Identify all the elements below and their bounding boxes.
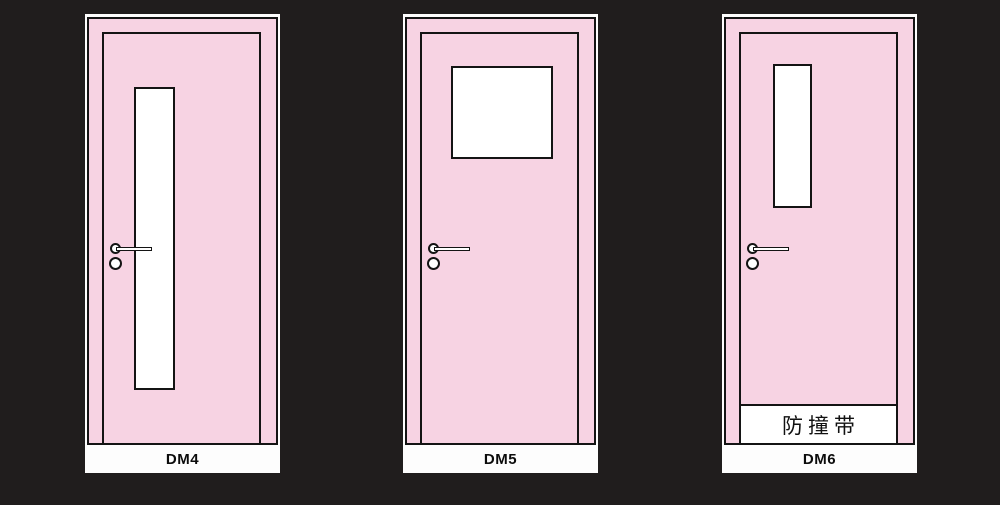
handle-knob [109,257,122,270]
door-label: DM5 [403,445,598,473]
door-label: DM4 [85,445,280,473]
door-unit-dm4: DM4 [85,14,280,473]
bumper-strip-label: 防撞带 [777,410,860,440]
door-unit-dm6: 防撞带 DM6 [722,14,917,473]
canvas: { "page": { "background_color": "#201d1d… [0,0,1000,505]
door-panel [87,17,278,445]
handle-ring [747,243,758,254]
door-leaf [420,32,579,443]
handle-knob [427,257,440,270]
door-handle [104,34,259,443]
handle-knob [746,257,759,270]
door-unit-dm5: DM5 [403,14,598,473]
door-panel [405,17,596,445]
door-window-glass [451,66,553,159]
handle-lever [753,247,789,251]
door-label: DM6 [722,445,917,473]
handle-lever [434,247,470,251]
door-window-glass [773,64,812,208]
door-handle [741,34,896,443]
handle-ring [110,243,121,254]
bumper-strip: 防撞带 [741,404,896,443]
door-leaf [102,32,261,443]
door-panel: 防撞带 [724,17,915,445]
handle-ring [428,243,439,254]
door-leaf: 防撞带 [739,32,898,443]
door-window-glass [134,87,175,390]
